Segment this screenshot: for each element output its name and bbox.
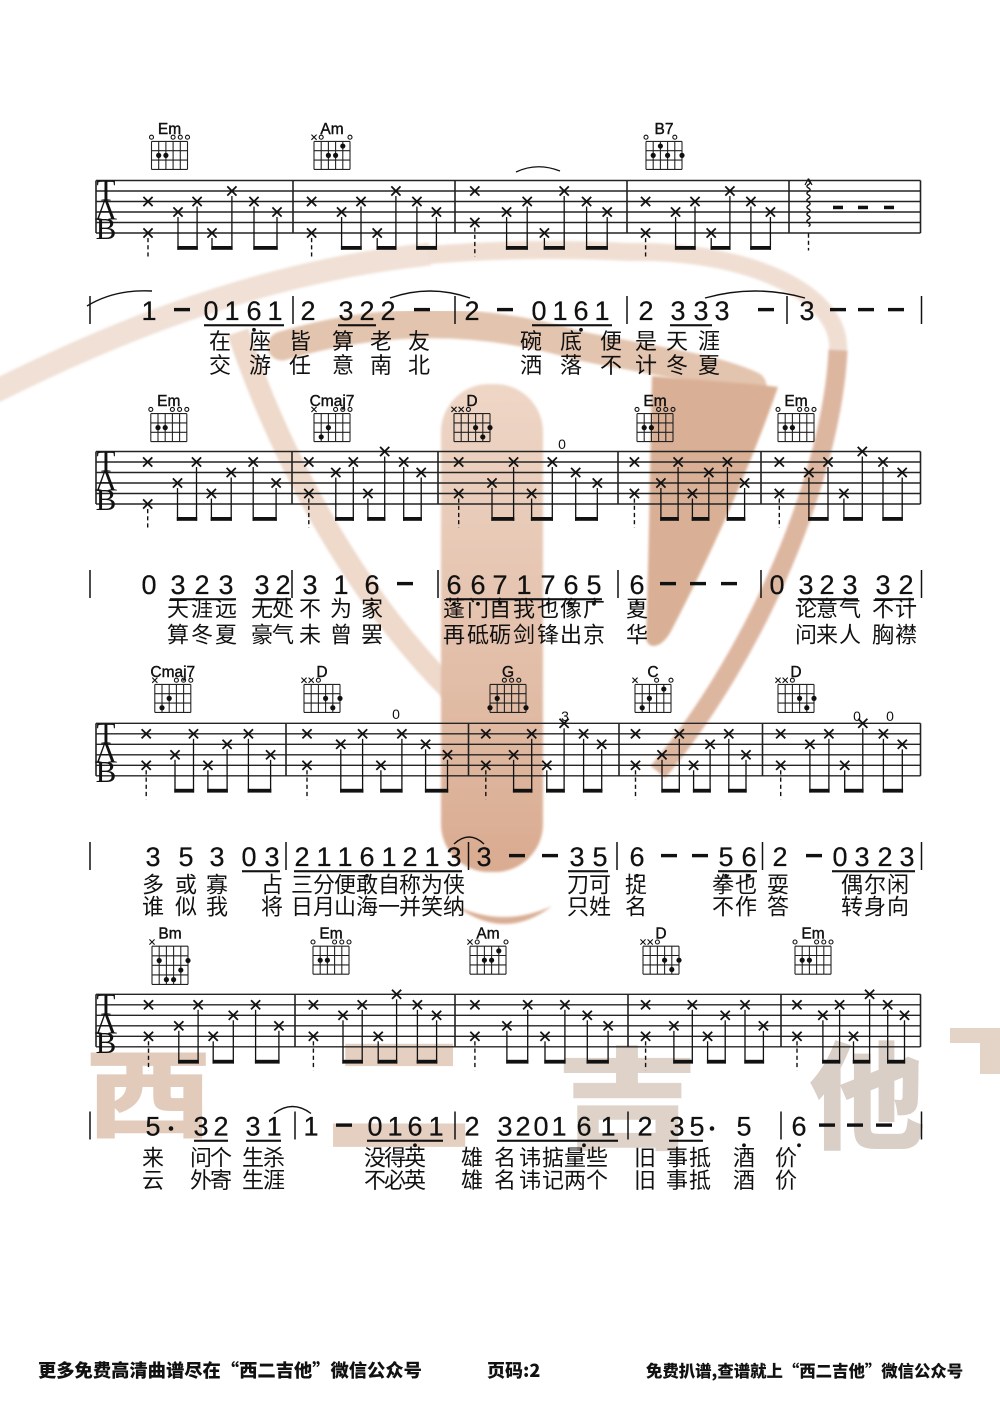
svg-text:0: 0	[531, 296, 546, 326]
svg-text:夏: 夏	[215, 617, 237, 649]
svg-text:姓: 姓	[589, 889, 611, 921]
svg-text:记: 记	[542, 1163, 564, 1195]
svg-text:Em: Em	[158, 121, 181, 138]
svg-text:3: 3	[193, 1112, 208, 1142]
svg-text:3: 3	[561, 708, 569, 724]
svg-text:0: 0	[769, 570, 784, 600]
svg-text:3: 3	[476, 842, 491, 872]
svg-text:涯: 涯	[263, 1163, 285, 1195]
svg-text:出: 出	[560, 617, 582, 649]
svg-text:Bm: Bm	[158, 926, 181, 943]
svg-text:3: 3	[670, 296, 685, 326]
svg-text:来: 来	[816, 617, 838, 649]
svg-text:6: 6	[407, 1112, 422, 1142]
svg-text:英: 英	[404, 1163, 426, 1195]
svg-text:酒: 酒	[733, 1163, 755, 1195]
svg-text:2: 2	[464, 1112, 479, 1142]
svg-text:寄: 寄	[210, 1163, 232, 1195]
svg-text:算: 算	[167, 617, 189, 649]
svg-text:免费扒谱,查谱就上“西二吉他”微信公众号: 免费扒谱,查谱就上“西二吉他”微信公众号	[646, 1358, 963, 1382]
svg-text:1: 1	[551, 1112, 566, 1142]
svg-text:事: 事	[666, 1163, 688, 1195]
svg-text:3: 3	[693, 296, 708, 326]
svg-text:价: 价	[775, 1163, 797, 1195]
svg-text:6: 6	[791, 1112, 806, 1142]
svg-text:3: 3	[799, 296, 814, 326]
svg-text:砥: 砥	[467, 617, 489, 649]
svg-text:身: 身	[864, 889, 886, 921]
svg-text:将: 将	[261, 889, 283, 921]
svg-text:必: 必	[384, 1163, 406, 1195]
svg-text:交: 交	[209, 348, 231, 380]
svg-text:罢: 罢	[361, 617, 383, 649]
svg-text:1: 1	[428, 1112, 443, 1142]
svg-text:0: 0	[392, 706, 400, 722]
svg-text:作: 作	[735, 889, 757, 921]
svg-text:Am: Am	[320, 121, 343, 138]
svg-text:B: B	[96, 482, 117, 517]
svg-text:5: 5	[145, 1112, 160, 1142]
svg-text:冬: 冬	[191, 617, 213, 649]
svg-text:3: 3	[245, 1112, 260, 1142]
svg-text:B: B	[96, 1025, 117, 1060]
svg-text:1: 1	[594, 296, 609, 326]
svg-text:不: 不	[600, 348, 622, 380]
svg-text:生: 生	[242, 1163, 264, 1195]
svg-text:向: 向	[887, 889, 909, 921]
svg-text:讳: 讳	[519, 1163, 541, 1195]
svg-text:1: 1	[387, 1112, 402, 1142]
svg-text:外: 外	[190, 1163, 212, 1195]
svg-text:1: 1	[224, 296, 239, 326]
svg-text:5: 5	[736, 1112, 751, 1142]
svg-text:2: 2	[380, 296, 395, 326]
svg-text:不: 不	[712, 889, 734, 921]
svg-text:Em: Em	[643, 393, 666, 410]
svg-text:转: 转	[841, 889, 863, 921]
svg-text:一: 一	[378, 889, 400, 921]
svg-text:名: 名	[625, 889, 647, 921]
svg-text:2: 2	[515, 1112, 530, 1142]
svg-text:1: 1	[266, 1112, 281, 1142]
svg-text:任: 任	[289, 348, 311, 380]
svg-text:豪: 豪	[251, 617, 273, 649]
svg-text:答: 答	[767, 889, 789, 921]
svg-text:2: 2	[464, 296, 479, 326]
svg-text:夏: 夏	[698, 348, 720, 380]
svg-text:洒: 洒	[520, 348, 542, 380]
svg-text:云: 云	[142, 1163, 164, 1195]
svg-text:并: 并	[399, 889, 421, 921]
svg-text:海: 海	[356, 889, 378, 921]
svg-text:旧: 旧	[634, 1163, 656, 1195]
svg-text:雄: 雄	[461, 1163, 483, 1195]
svg-text:2: 2	[359, 296, 374, 326]
svg-text:6: 6	[576, 1112, 591, 1142]
svg-text:谁: 谁	[142, 889, 164, 921]
svg-text:襟: 襟	[895, 617, 917, 649]
svg-text:似: 似	[175, 889, 197, 921]
svg-text:0: 0	[203, 296, 218, 326]
svg-text:只: 只	[567, 889, 589, 921]
svg-text:2: 2	[637, 1112, 652, 1142]
svg-text:游: 游	[249, 348, 271, 380]
svg-text:日: 日	[291, 889, 313, 921]
svg-text:5: 5	[689, 1112, 704, 1142]
svg-text:2: 2	[638, 296, 653, 326]
svg-text:气: 气	[272, 617, 294, 649]
svg-text:京: 京	[583, 617, 605, 649]
svg-text:2: 2	[300, 296, 315, 326]
svg-text:人: 人	[839, 617, 861, 649]
svg-text:再: 再	[443, 617, 465, 649]
svg-text:冬: 冬	[666, 348, 688, 380]
svg-text:B: B	[96, 754, 117, 789]
svg-text:两: 两	[564, 1163, 586, 1195]
svg-text:计: 计	[635, 348, 657, 380]
svg-text:1: 1	[600, 1112, 615, 1142]
svg-text:Em: Em	[157, 393, 180, 410]
svg-text:不: 不	[364, 1163, 386, 1195]
svg-text:南: 南	[370, 348, 392, 380]
svg-text:月: 月	[313, 889, 335, 921]
svg-text:页码:2: 页码:2	[487, 1357, 540, 1383]
svg-text:胸: 胸	[872, 617, 894, 649]
svg-text:Em: Em	[801, 926, 824, 943]
svg-text:北: 北	[408, 348, 430, 380]
svg-text:6: 6	[246, 296, 261, 326]
svg-text:抵: 抵	[689, 1163, 711, 1195]
svg-text:Am: Am	[476, 926, 499, 943]
svg-text:0: 0	[367, 1112, 382, 1142]
svg-text:1: 1	[267, 296, 282, 326]
svg-text:笑: 笑	[421, 889, 443, 921]
svg-text:更多免费高清曲谱尽在“西二吉他”微信公众号: 更多免费高清曲谱尽在“西二吉他”微信公众号	[38, 1357, 422, 1383]
svg-text:0: 0	[853, 708, 861, 724]
svg-text:2: 2	[213, 1112, 228, 1142]
svg-text:B: B	[96, 211, 117, 246]
svg-text:剑: 剑	[513, 617, 535, 649]
svg-text:未: 未	[299, 617, 321, 649]
svg-text:Em: Em	[319, 926, 342, 943]
svg-text:曾: 曾	[330, 617, 352, 649]
svg-text:3: 3	[714, 296, 729, 326]
svg-text:意: 意	[332, 348, 354, 380]
svg-text:B7: B7	[655, 121, 674, 138]
svg-text:1: 1	[303, 1112, 318, 1142]
svg-text:0: 0	[886, 708, 894, 724]
svg-text:锋: 锋	[537, 617, 559, 649]
svg-text:纳: 纳	[443, 889, 465, 921]
svg-text:0: 0	[141, 570, 156, 600]
svg-text:1: 1	[552, 296, 567, 326]
svg-text:0: 0	[558, 436, 566, 452]
svg-text:山: 山	[334, 889, 356, 921]
svg-text:砺: 砺	[489, 617, 511, 649]
svg-text:1: 1	[141, 296, 156, 326]
svg-text:3: 3	[497, 1112, 512, 1142]
svg-text:0: 0	[533, 1112, 548, 1142]
svg-text:问: 问	[795, 617, 817, 649]
svg-text:Em: Em	[784, 393, 807, 410]
svg-text:华: 华	[626, 617, 648, 649]
svg-text:6: 6	[573, 296, 588, 326]
svg-text:名: 名	[494, 1163, 516, 1195]
svg-text:3: 3	[338, 296, 353, 326]
svg-text:个: 个	[586, 1163, 608, 1195]
svg-text:落: 落	[560, 348, 582, 380]
svg-text:0: 0	[241, 842, 256, 872]
svg-text:他: 他	[809, 1004, 925, 1173]
svg-text:我: 我	[206, 889, 228, 921]
svg-text:3: 3	[669, 1112, 684, 1142]
